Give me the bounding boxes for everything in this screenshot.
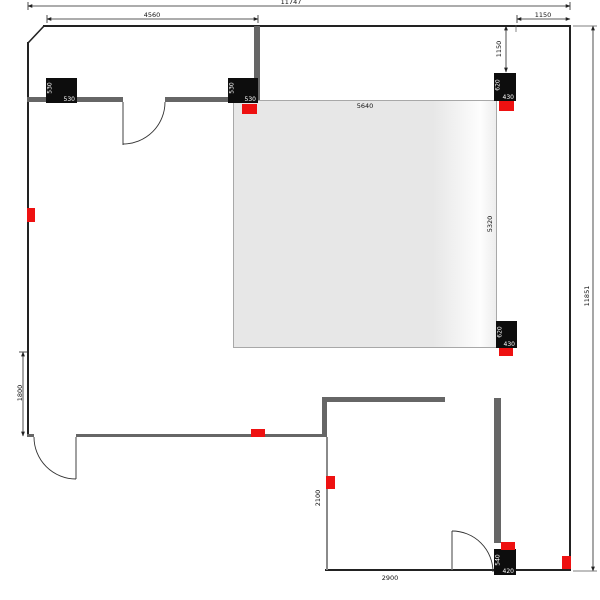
fixture-box-1: 530 530 <box>46 78 77 103</box>
dim-label-room-width: 5640 <box>345 102 385 110</box>
fixture-5-rotated-label: 540 <box>496 554 502 565</box>
fixture-1-label: 530 <box>64 97 75 103</box>
fixture-box-3: 620 430 <box>494 73 516 101</box>
outer-wall-right <box>569 25 571 571</box>
fixture-1-rotated-label: 530 <box>48 82 54 93</box>
dim-label-total-height: 11851 <box>583 281 591 311</box>
dim-label-4560: 4560 <box>132 11 172 19</box>
dim-label-1150-horizontal: 1150 <box>523 11 563 19</box>
fixture-box-4: 620 430 <box>496 321 517 348</box>
fixture-4-rotated-wrap: 620 <box>495 321 507 343</box>
dim-label-2900: 2900 <box>370 574 410 582</box>
red-marker-lower-left-wall <box>326 476 335 489</box>
fixture-5-label: 420 <box>503 569 514 575</box>
dim-label-2100: 2100 <box>314 483 322 513</box>
fixture-3-rotated-label: 620 <box>496 79 502 90</box>
corner-chamfer-wall <box>28 26 44 43</box>
main-bottom-wall-stub <box>27 434 34 437</box>
red-marker-bottom-wall <box>251 429 265 437</box>
dim-label-room-height: 5320 <box>486 209 494 239</box>
fixture-2-rotated-wrap: 530 <box>227 78 239 98</box>
fixture-2-rotated-label: 530 <box>230 82 236 93</box>
main-room-area <box>233 100 497 348</box>
door-1-swing-arc <box>123 102 165 144</box>
floor-plan: 530 530 530 530 620 430 620 430 540 420 <box>0 0 600 600</box>
red-marker-room-top-right <box>499 101 514 111</box>
red-marker-room-top-left <box>242 104 257 114</box>
fixture-5-rotated-wrap: 540 <box>493 549 505 570</box>
fixture-1-rotated-wrap: 530 <box>45 78 57 98</box>
dim-label-total-width: 11747 <box>271 0 311 6</box>
red-marker-left-wall <box>27 208 35 222</box>
door-2-swing-arc <box>34 437 76 479</box>
dim-label-1800: 1800 <box>16 378 24 408</box>
fixture-box-5: 540 420 <box>494 549 516 575</box>
fixture-4-rotated-label: 620 <box>498 326 504 337</box>
fixture-3-rotated-wrap: 620 <box>493 73 505 96</box>
lower-room-bottom-wall <box>325 569 571 571</box>
fixture-2-label: 530 <box>245 97 256 103</box>
main-bottom-wall <box>76 434 325 437</box>
red-marker-room-bottom-right <box>499 348 513 356</box>
lower-room-inner-wall <box>494 398 501 543</box>
dim-label-1150-vertical: 1150 <box>495 34 503 64</box>
lower-room-left-wall-upper <box>322 397 327 437</box>
red-marker-lower-fixture <box>501 542 515 550</box>
outer-wall-top <box>43 25 570 27</box>
red-marker-right-wall <box>562 556 571 569</box>
fixture-box-2: 530 530 <box>228 78 258 103</box>
door-3-swing-arc <box>452 531 493 572</box>
lower-room-left-wall-lower <box>326 437 328 570</box>
lower-room-top-wall <box>322 397 445 402</box>
